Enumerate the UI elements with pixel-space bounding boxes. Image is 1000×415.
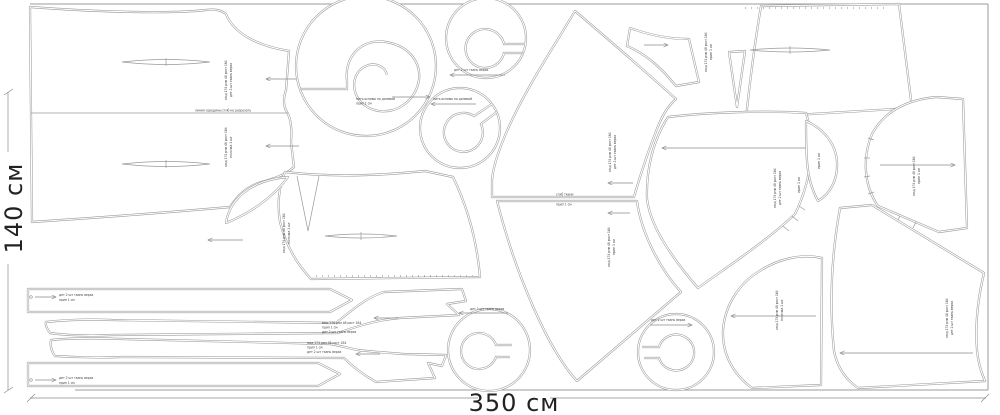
microtext-label: прип 1 см xyxy=(709,44,713,60)
microtext-label: прип 1 см xyxy=(556,203,572,207)
microtext-label: дет 2 шт ткань верха xyxy=(307,350,341,354)
notch-tick xyxy=(783,226,789,231)
microtext-label: дет 2 шт ткань верха xyxy=(470,307,504,311)
notch-tick xyxy=(799,206,805,210)
fabric-height-label: 140 см xyxy=(0,163,28,254)
microtext-label: нить основы по долевой xyxy=(356,97,395,101)
microtext-label: прип 1 см xyxy=(59,381,75,385)
height-dimension: 140 см xyxy=(0,89,28,393)
microtext-label: мод 174 рзм 48 рост 164 xyxy=(307,341,346,345)
piece-dart-wedge xyxy=(729,51,745,107)
microtext-label: дет 2 шт ткань верха xyxy=(613,135,617,169)
microtext-label: дет 2 шт ткань верха xyxy=(59,293,93,297)
notch-tick xyxy=(792,216,798,221)
dimension-tick xyxy=(4,89,13,95)
microtext-label: мод 174 рзм 48 рост 164 xyxy=(773,168,777,207)
piece-belt-strip-bottom: дет 2 шт ткань верха прип 1 см xyxy=(28,363,340,386)
dimension-tick xyxy=(4,387,13,393)
microtext-label: полочка 1 шт xyxy=(780,299,784,321)
microtext-label: прип 1 см xyxy=(59,298,75,302)
microtext-label: прип 1 см xyxy=(817,153,821,169)
microtext-label: мод 174 рзм 48 рост 164 xyxy=(322,321,361,325)
microtext-label: нить основы по долевой xyxy=(433,97,472,101)
microtext-label: дет 2 шт ткань верха xyxy=(322,330,356,334)
piece-belt-strip-top: дет 2 шт ткань верха прип 1 см xyxy=(28,289,352,312)
piece-back-skirt-panel: мод 174 рзм 48 рост 164 дет 2 шт ткань в… xyxy=(832,205,985,388)
microtext-label: мод 174 рзм 48 рост 164 xyxy=(224,60,228,99)
microtext-label: прип 1 см xyxy=(612,239,616,255)
microtext-label: мод 174 рзм 48 рост 164 xyxy=(607,227,611,266)
microtext-label: полочка 1 шт xyxy=(287,222,291,244)
microtext-label: полочка 1 шт xyxy=(229,136,233,158)
microtext-label: линия середины сгиб не разрезать xyxy=(195,109,251,113)
microtext-label: дет 2 шт ткань верха xyxy=(59,376,93,380)
microtext-label: мод 174 рзм 48 рост 164 xyxy=(912,156,916,195)
microtext-label: дет 2 шт ткань верха xyxy=(454,68,488,72)
microtext-label: прип 1 см xyxy=(917,168,921,184)
microtext-label: мод 174 рзм 48 рост 164 xyxy=(704,32,708,71)
microtext-label: дет 2 шт ткань верха xyxy=(950,301,954,335)
piece-yoke-trapezoid xyxy=(745,4,912,118)
piece-side-bodice: мод 174 рзм 48 рост 164 полочка 1 шт xyxy=(723,256,822,388)
microtext-label: мод 174 рзм 48 рост 164 xyxy=(282,213,286,252)
fabric-width-label: 350 см xyxy=(469,389,560,415)
microtext-label: прип 1 см xyxy=(307,346,323,350)
microtext-label: прип 1 см xyxy=(356,102,372,106)
microtext-label: прип 1 см xyxy=(797,177,801,193)
microtext-label: мод 174 рзм 48 рост 164 xyxy=(608,132,612,171)
microtext-label: дет 2 шт ткань верха xyxy=(651,318,685,322)
microtext-label: прип 1 см xyxy=(322,326,338,330)
microtext-label: мод 174 рзм 48 рост 164 xyxy=(224,127,228,166)
piece-hem-spiral-flounce: дет 2 шт ткань верха xyxy=(448,307,530,391)
notch-tick xyxy=(913,222,916,228)
width-dimension: 350 см xyxy=(27,389,989,415)
microtext-label: дет 2 шт ткань верха xyxy=(778,171,782,205)
piece-small-spiral-flounce-top: дет 2 шт ткань верха xyxy=(446,0,526,78)
piece-neckband-crescent: прип 1 см xyxy=(806,121,837,201)
piece-small-spiral-flounce-bottom: дет 2 шт ткань верха xyxy=(638,314,714,390)
microtext-label: сгиб ткани xyxy=(556,193,573,197)
piece-small-spiral-flounce-mid: нить основы по долевой xyxy=(420,88,500,168)
microtext-label: мод 174 рзм 48 рост 164 xyxy=(775,290,779,329)
piece-large-spiral-flounce: нить основы по долевой прип 1 см xyxy=(296,0,436,136)
marker-layout: линия середины сгиб не разрезать мод 174… xyxy=(0,0,1000,415)
wedge-label: мод 174 рзм 48 рост 164 прип 1 см xyxy=(704,32,713,71)
microtext-label: мод 174 рзм 48 рост 164 xyxy=(945,298,949,337)
microtext-label: дет 2 шт ткань верха xyxy=(229,63,233,97)
marker-canvas: линия середины сгиб не разрезать мод 174… xyxy=(0,0,1000,415)
